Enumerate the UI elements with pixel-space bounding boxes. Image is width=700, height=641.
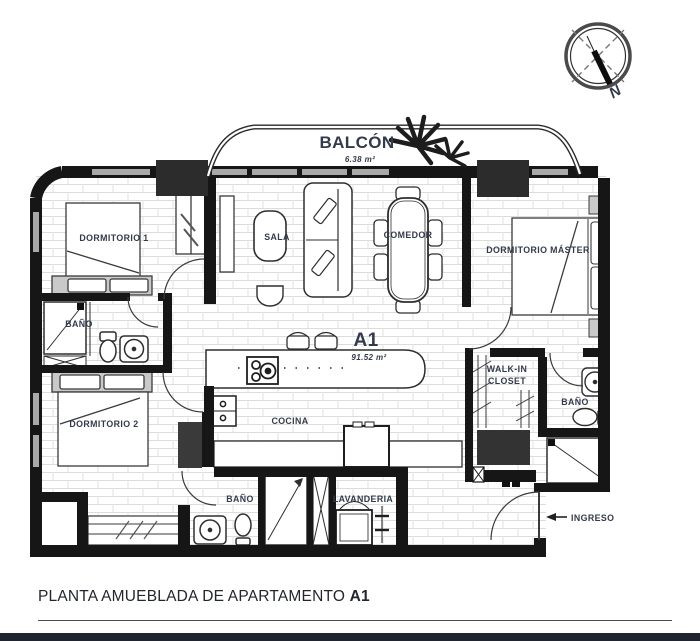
plan-caption: PLANTA AMUEBLADA DE APARTAMENTO A1 [38, 588, 370, 606]
bottom-bar [0, 633, 700, 641]
room-label-dormitorio-1: DORMITORIO 1 [79, 233, 148, 243]
kitchen-island-icon [206, 350, 425, 388]
unit-label: A1 [353, 330, 378, 351]
shower-bano-2-icon [265, 473, 307, 545]
shower-bano-1-icon [44, 302, 90, 356]
ottoman-icon [257, 286, 283, 306]
meter-box-icon [502, 480, 510, 487]
closet-block-dormitorio-2 [178, 422, 202, 468]
shaft-x-box-icon [473, 467, 484, 482]
duct-shaft-icon [313, 473, 329, 545]
sofa-icon [304, 183, 352, 297]
room-label-cocina: COCINA [271, 416, 308, 426]
sink-bano-1-icon [120, 336, 148, 362]
room-label-dormitorio-master: DORMITORIO MÁSTER [486, 245, 590, 255]
tv-console-icon [220, 196, 234, 272]
closet-rod-dormitorio-2-icon [88, 516, 180, 545]
walkin-drawers-block [477, 430, 530, 465]
exterior-notch [42, 500, 77, 545]
plan-caption-unit: A1 [350, 588, 370, 605]
plan-caption-text: PLANTA AMUEBLADA DE APARTAMENTO [38, 588, 345, 605]
bed-master-icon [512, 218, 607, 315]
palm-plant-icon [391, 117, 468, 166]
room-label-comedor: COMEDOR [384, 230, 433, 240]
sink-bano-2-icon [194, 516, 226, 544]
room-label-dormitorio-2: DORMITORIO 2 [69, 419, 138, 429]
room-label-walkin-2: CLOSET [488, 376, 526, 386]
oven-icon [211, 396, 236, 426]
balcony-label: BALCÓN [319, 133, 394, 152]
room-label-bano-2: BAÑO [226, 494, 254, 504]
cooktop-icon [247, 357, 278, 384]
toilet-bano-1-icon [100, 332, 116, 362]
toilet-bano-2-icon [235, 514, 251, 545]
room-label-ingreso: INGRESO [571, 513, 614, 523]
kitchen-counter-icon [214, 441, 462, 467]
room-label-sala: SALA [264, 232, 290, 242]
floor-plan-drawing: N BALCÓN 6.38 m² DORMITORIO 1 SALA COMED… [0, 0, 700, 562]
balcony-area: 6.38 m² [345, 155, 375, 164]
room-label-walkin-1: WALK-IN [487, 364, 527, 374]
floor-plan-page: N BALCÓN 6.38 m² DORMITORIO 1 SALA COMED… [0, 0, 700, 641]
closet-mirror-icon [176, 192, 206, 254]
room-label-bano-1: BAÑO [65, 319, 93, 329]
unit-area: 91.52 m² [351, 353, 386, 362]
caption-rule [38, 620, 672, 621]
room-label-lavanderia: LAVANDERIA [333, 494, 394, 504]
room-label-bano-master: BAÑO [561, 397, 589, 407]
bed-dormitorio-1-icon [52, 203, 152, 295]
fridge-icon [344, 422, 389, 467]
meter-box-icon [512, 480, 520, 487]
compass-icon: N [566, 24, 630, 102]
